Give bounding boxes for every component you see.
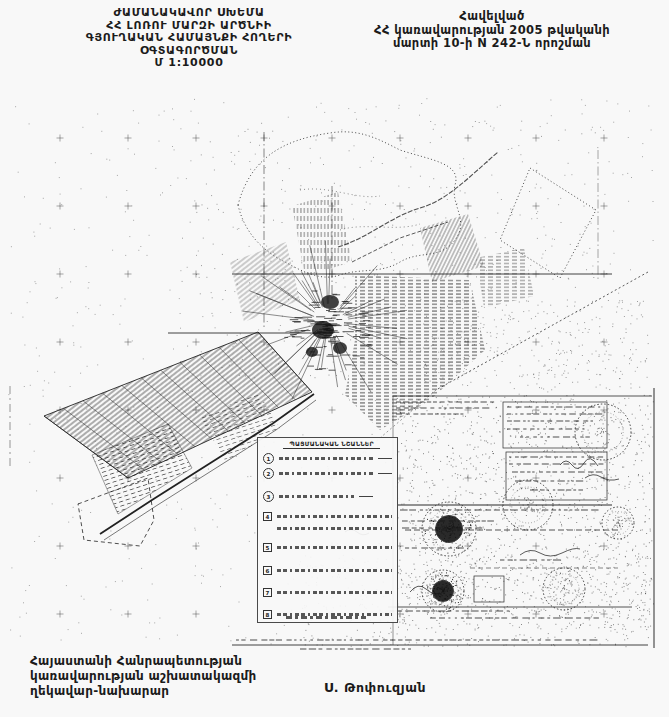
legend-item-text [279,495,354,498]
legend-item: 7 [263,586,392,599]
office-line: ղեկավար-նախարար [30,684,257,699]
legend-item-text [277,591,392,594]
legend-footnote-text [286,616,366,619]
signatory-name: Ս. Թոփուզյան [324,680,426,695]
signing-office-block: Հայաստանի Հանրապետության կառավարության ա… [30,654,257,699]
legend-item-text [277,515,392,518]
legend-item-text [277,546,392,549]
legend-symbol-square: 5 [263,543,272,552]
legend-item: 8 [263,608,392,621]
legend-symbol-square: 4 [263,512,272,521]
legend-symbol-circle: 1 [263,453,274,464]
office-line: Հայաստանի Հանրապետության [30,654,257,669]
legend-box: ՊԱՅՄԱՆԱԿԱՆ ՆՇԱՆՆԵՐ 1 2 3 4 5 [257,437,398,623]
legend-line-sample [378,458,392,460]
legend-line-sample [359,496,373,498]
legend-item: 3 [263,490,392,503]
legend-line-sample [378,473,392,475]
legend-item-text [277,569,392,572]
legend-item [263,522,392,535]
legend-item-text [277,527,392,530]
legend-item-text [279,472,373,475]
legend-symbol-square: 6 [263,566,272,575]
legend-symbol-square: 8 [263,610,272,619]
legend-item-text [279,457,373,460]
legend-item: 6 [263,564,392,577]
legend-item: 1 [263,452,392,465]
legend-title: ՊԱՅՄԱՆԱԿԱՆ ՆՇԱՆՆԵՐ [283,440,380,449]
legend-item: 5 [263,541,392,554]
legend-symbol-circle: 2 [263,468,274,479]
office-line: կառավարության աշխատակազմի [30,669,257,684]
legend-symbol-square: 7 [263,588,272,597]
legend-symbol-circle: 3 [263,491,274,502]
official-stamps [422,404,634,612]
legend-item: 2 [263,467,392,480]
scanned-map-sheet: ԺԱՄԱՆԱԿԱՎՈՐ ՍԽԵՄԱ ՀՀ ԼՈՌՈՒ ՄԱՐԶԻ ԱՐԾՆԻԻ … [0,0,669,717]
